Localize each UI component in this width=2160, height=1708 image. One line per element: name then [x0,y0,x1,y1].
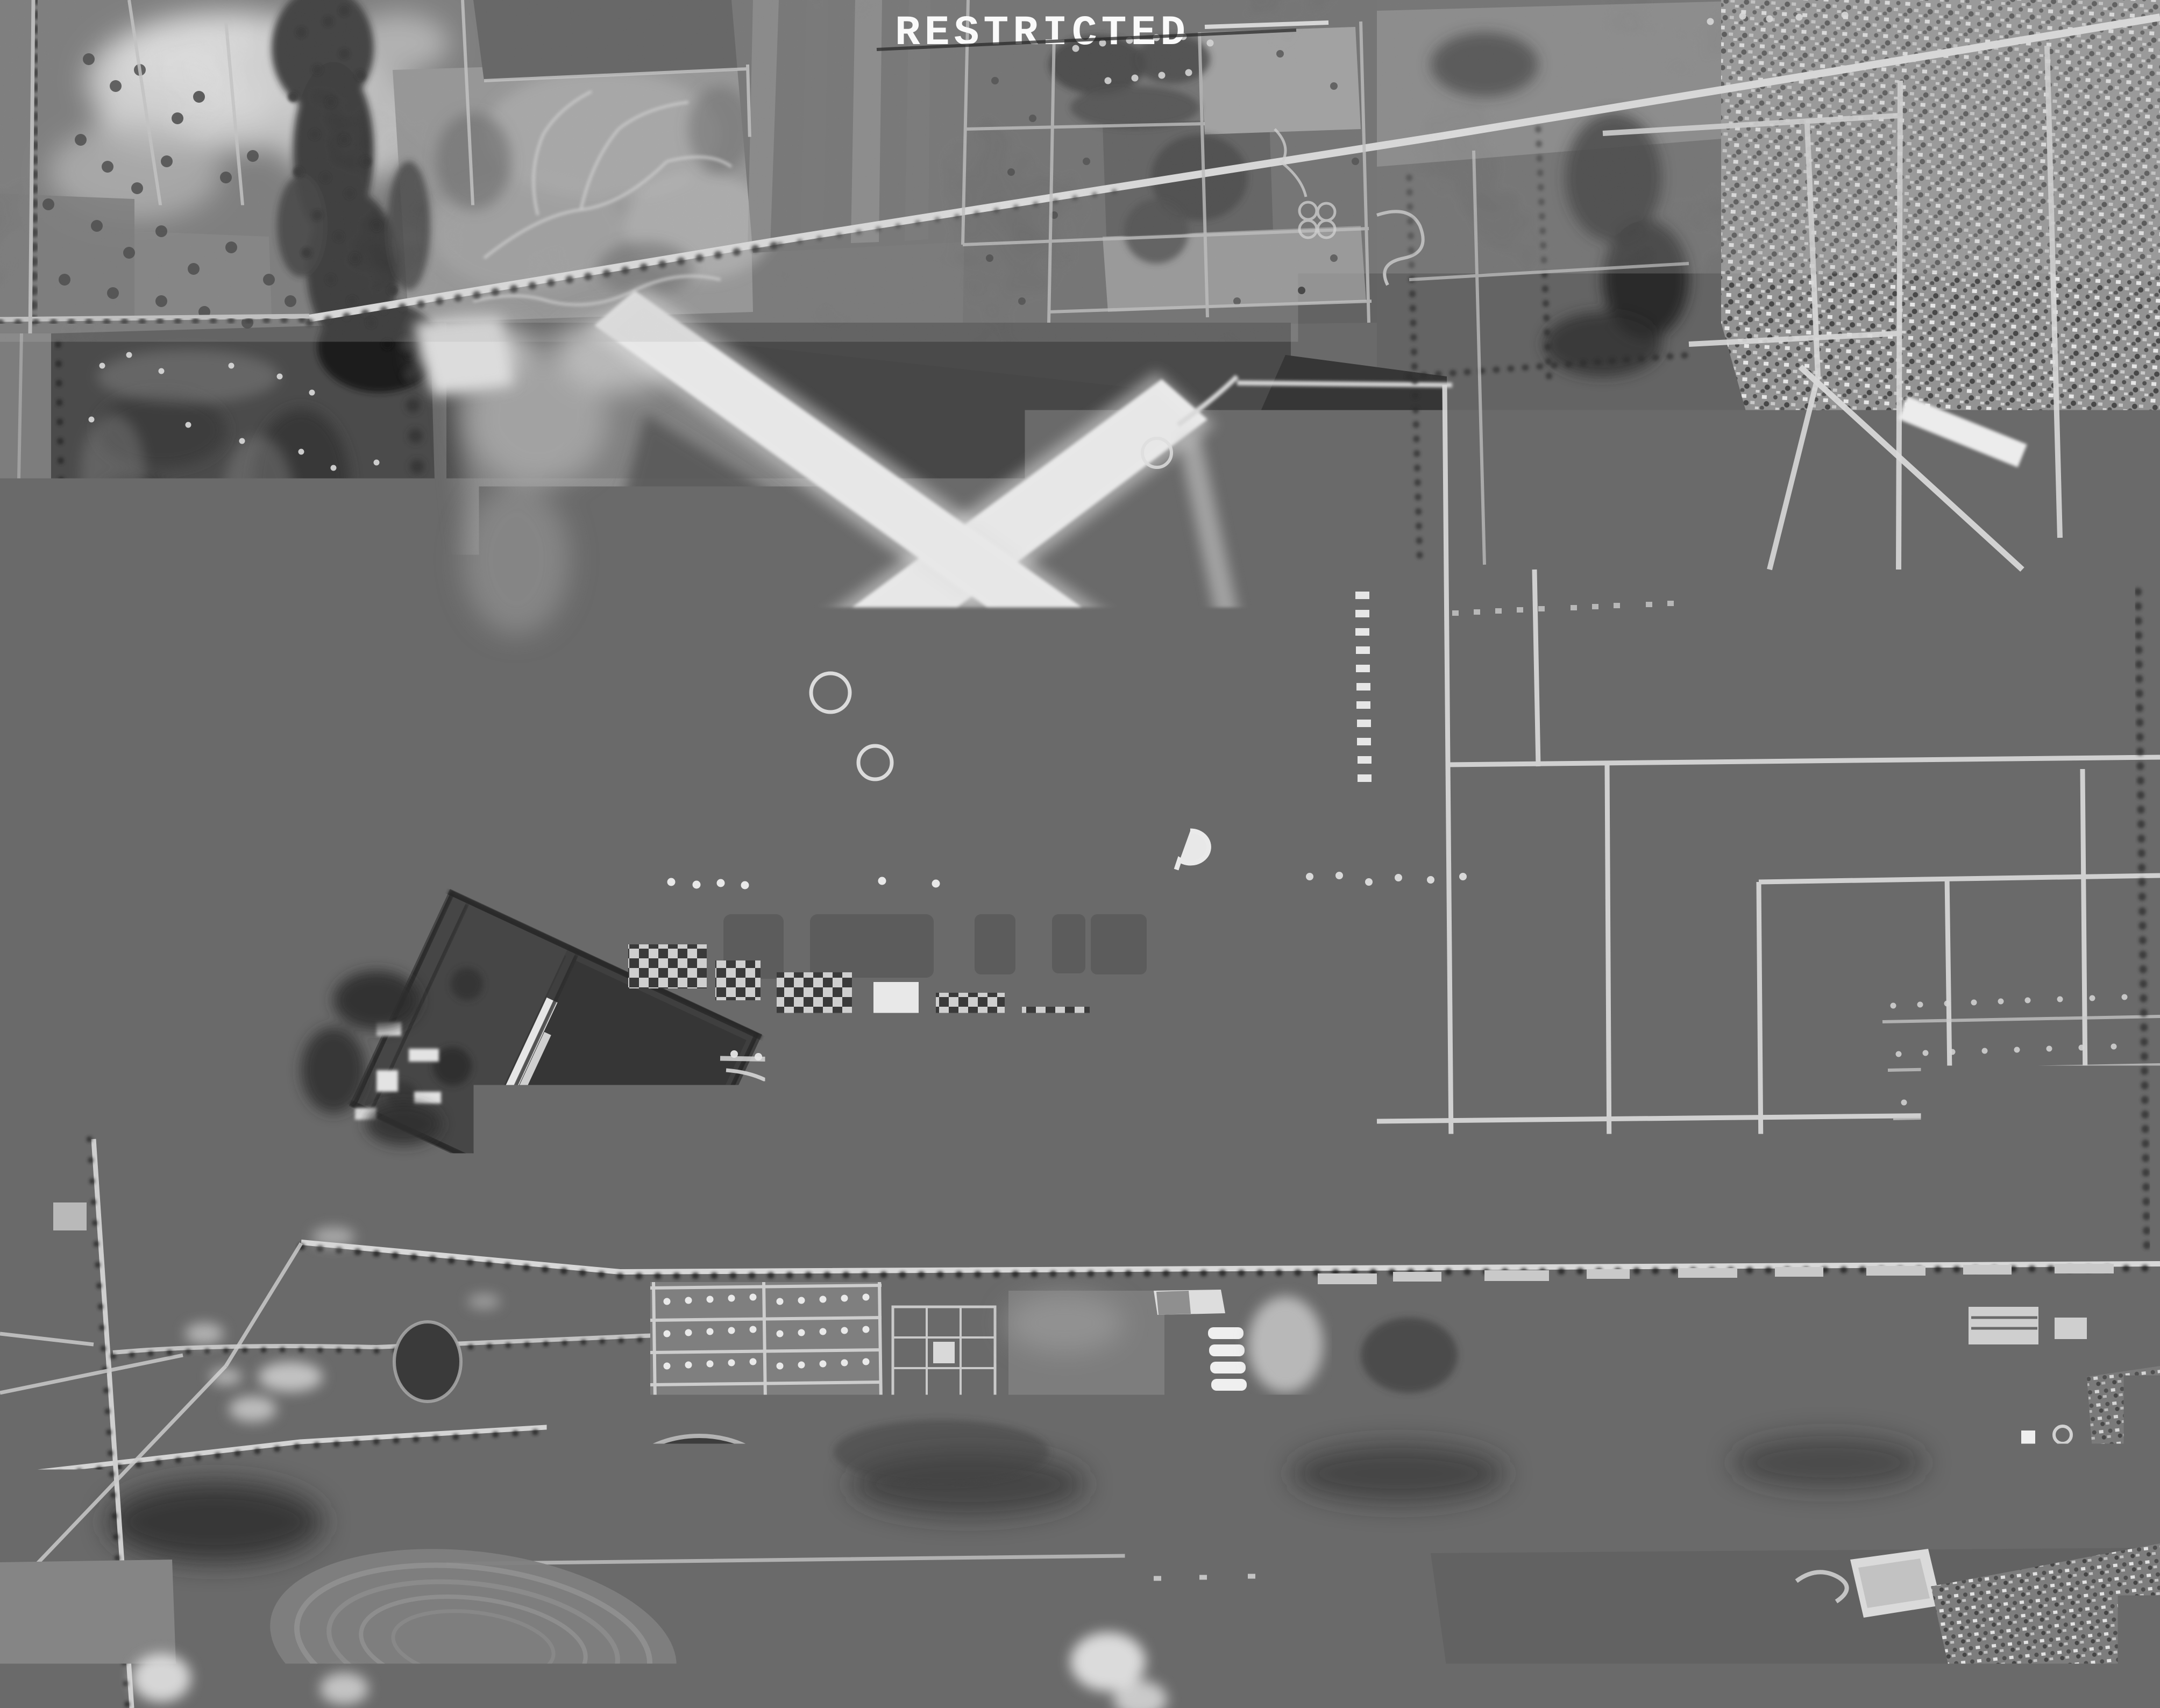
svg-text:V-11-876F-97)(9-5-40-9.20A)(8.: V-11-876F-97)(9-5-40-9.20A)(8.25-10000) … [141,1650,1652,1697]
svg-text:169A C.: 169A C. [1905,1653,2108,1700]
svg-text:RESTRICTED: RESTRICTED [895,10,1190,57]
